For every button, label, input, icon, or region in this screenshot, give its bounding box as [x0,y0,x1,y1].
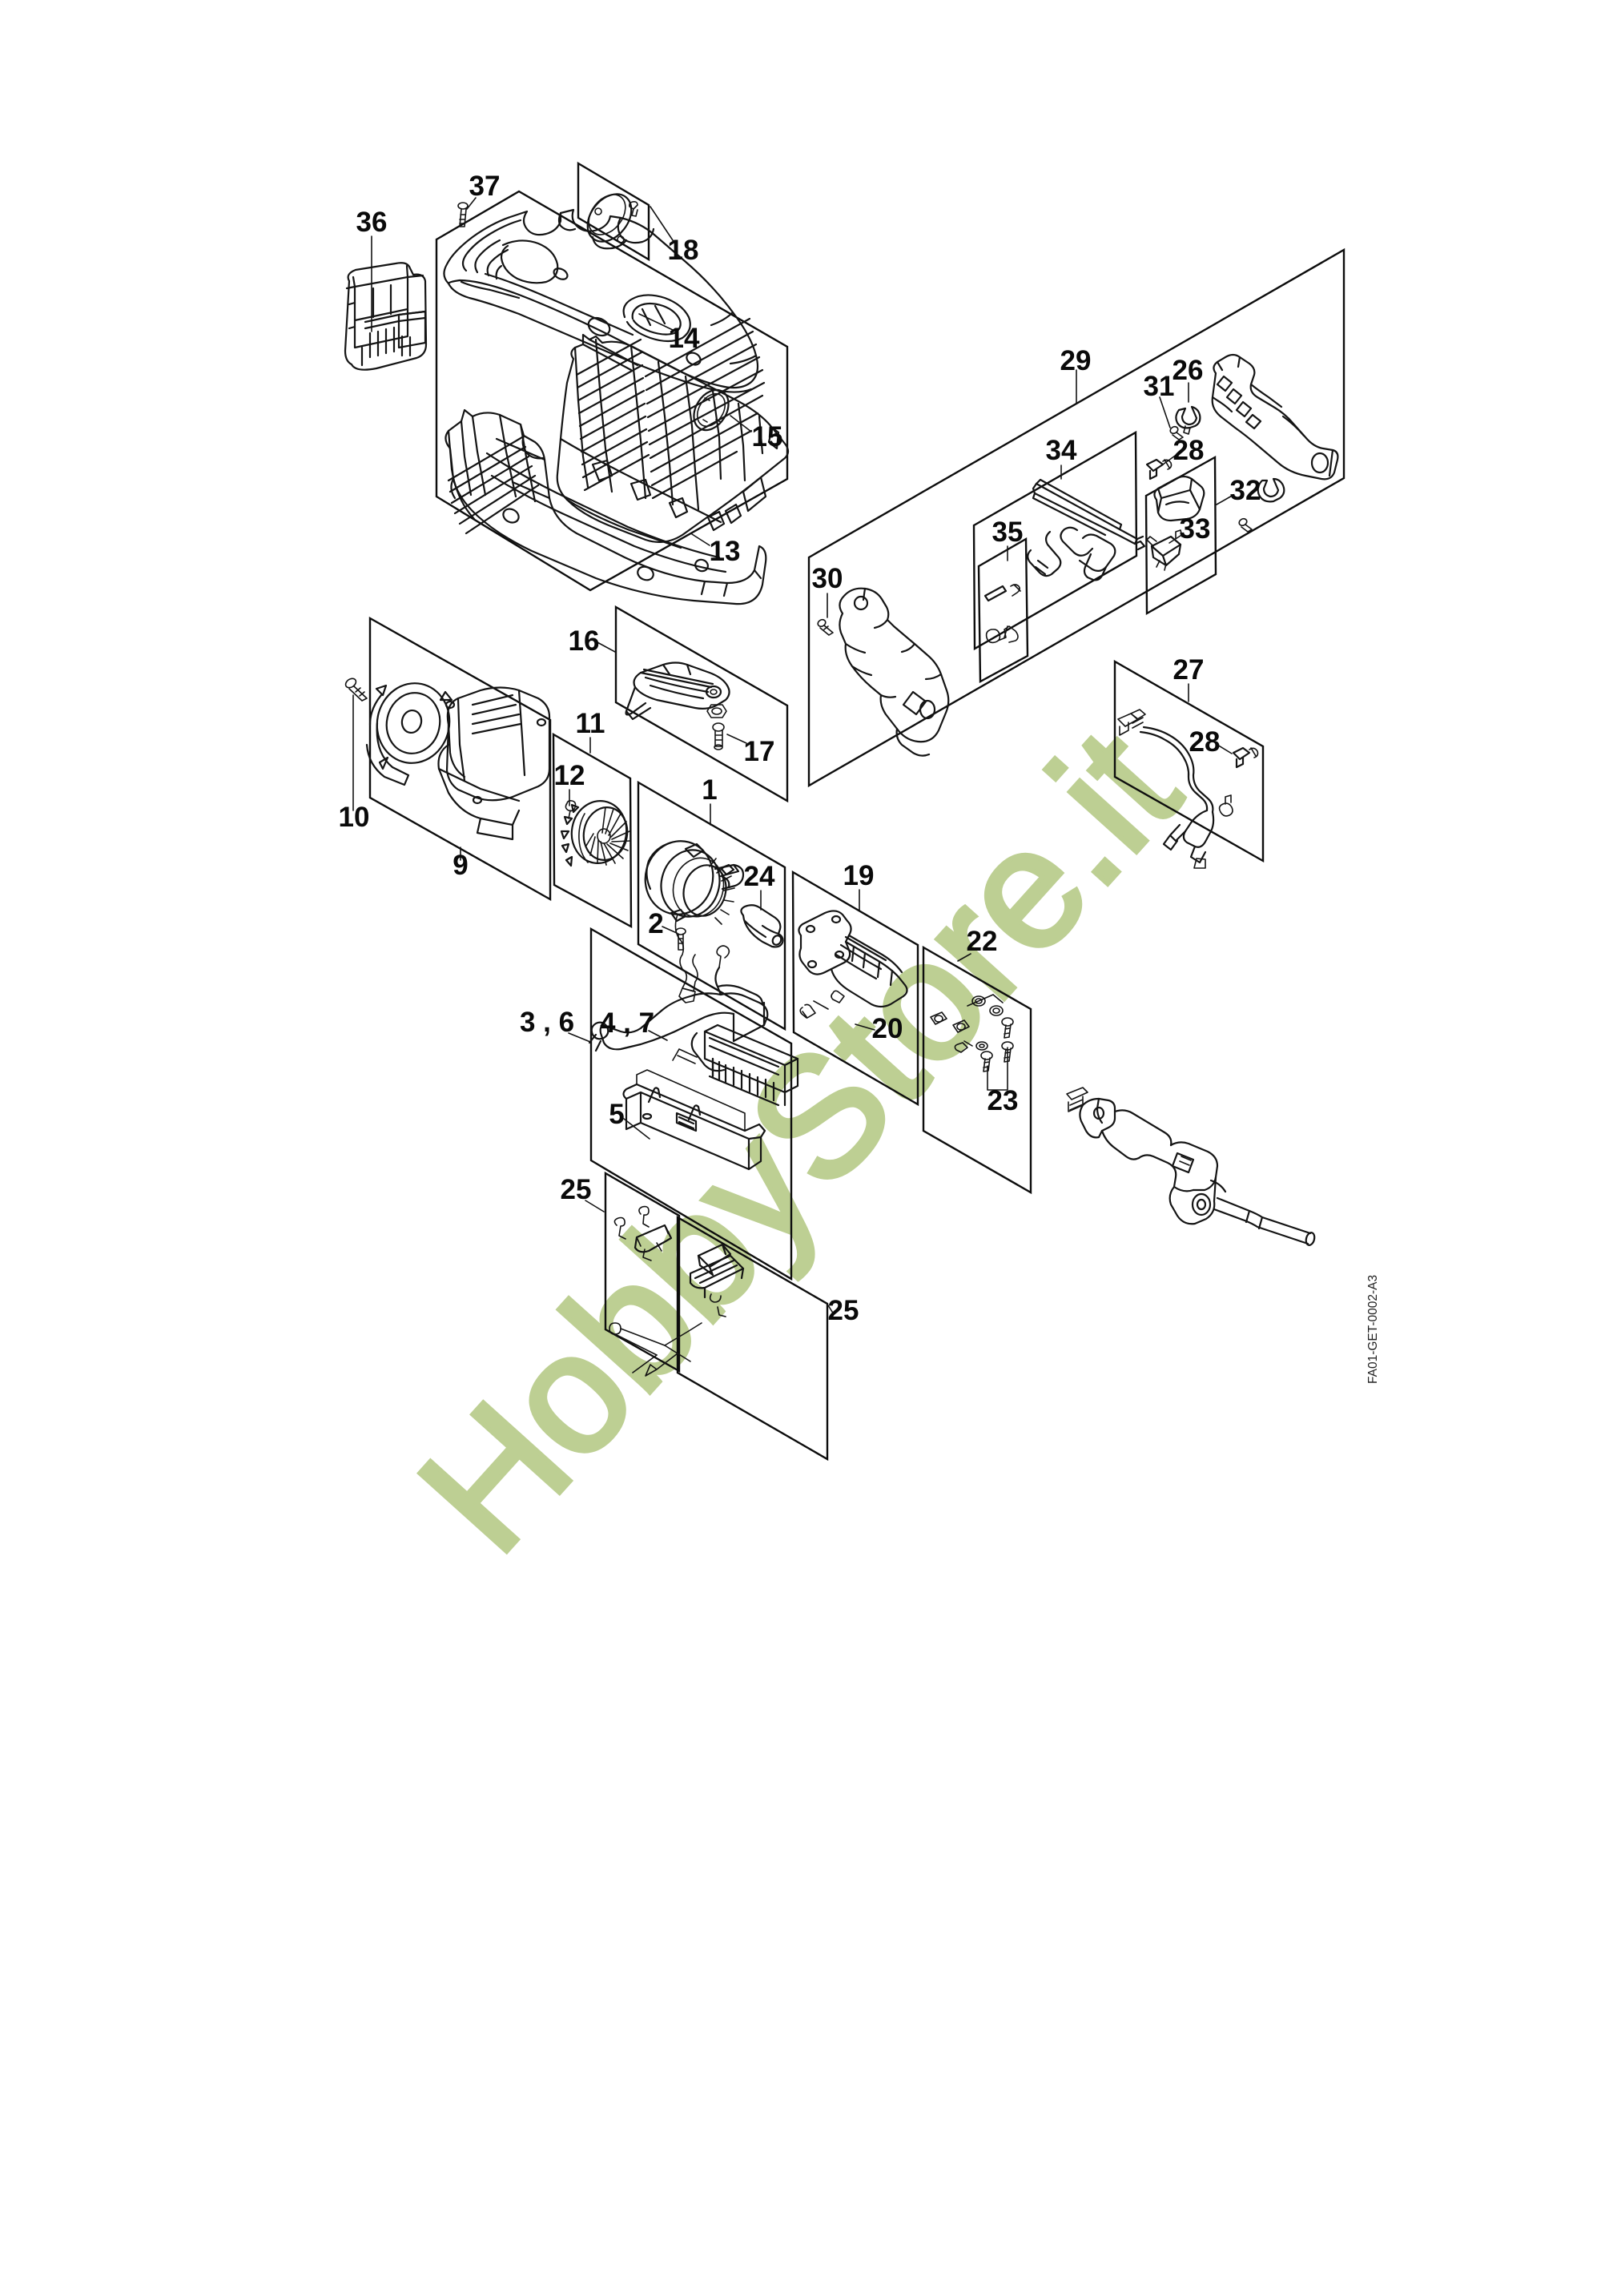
svg-text:31: 31 [1144,371,1175,402]
svg-text:22: 22 [967,926,998,957]
svg-text:4 , 7: 4 , 7 [600,1007,654,1039]
svg-text:35: 35 [992,517,1024,548]
svg-text:15: 15 [752,421,783,452]
svg-text:28: 28 [1173,435,1205,466]
svg-text:12: 12 [554,760,585,791]
svg-text:27: 27 [1173,654,1205,686]
svg-text:24: 24 [744,861,775,892]
svg-text:29: 29 [1060,345,1092,376]
svg-text:25: 25 [828,1295,859,1326]
svg-text:28: 28 [1189,726,1221,758]
svg-text:30: 30 [812,563,843,594]
svg-text:2: 2 [648,908,663,939]
svg-text:14: 14 [669,323,700,354]
svg-text:36: 36 [356,207,388,238]
svg-text:9: 9 [453,850,468,881]
svg-text:25: 25 [561,1174,592,1205]
svg-text:37: 37 [469,171,501,202]
svg-text:16: 16 [569,625,600,657]
svg-text:33: 33 [1180,513,1211,545]
svg-text:HobbyStore.it: HobbyStore.it [383,694,1213,1586]
svg-text:32: 32 [1230,475,1261,506]
svg-text:19: 19 [843,860,875,891]
svg-text:FA01-GET-0002-A3: FA01-GET-0002-A3 [1366,1275,1380,1384]
svg-text:3 , 6: 3 , 6 [520,1007,574,1038]
svg-text:5: 5 [609,1099,624,1130]
svg-text:18: 18 [668,235,699,266]
svg-text:1: 1 [702,774,717,806]
svg-text:20: 20 [872,1013,903,1044]
svg-text:17: 17 [744,736,775,767]
svg-text:13: 13 [710,536,741,567]
svg-text:10: 10 [339,802,370,833]
svg-text:34: 34 [1046,435,1077,466]
svg-text:26: 26 [1173,355,1204,386]
svg-text:23: 23 [987,1085,1019,1116]
svg-text:11: 11 [576,708,605,739]
